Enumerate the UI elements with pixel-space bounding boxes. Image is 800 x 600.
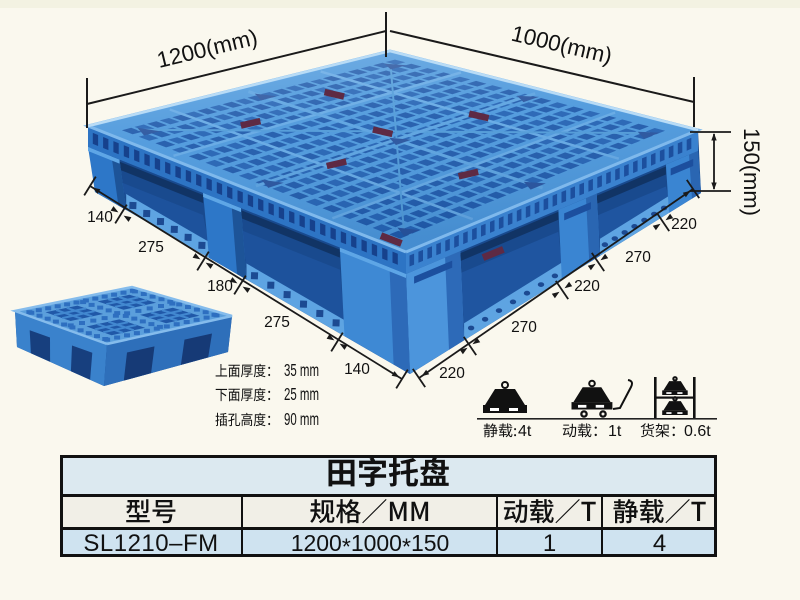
- svg-text:4t: 4t: [518, 423, 532, 440]
- svg-text:1200*1000*150: 1200*1000*150: [291, 530, 450, 560]
- svg-text:1t: 1t: [608, 423, 622, 440]
- svg-text:270: 270: [511, 319, 537, 336]
- svg-text:SL1210–FM: SL1210–FM: [83, 530, 218, 557]
- svg-text:140: 140: [87, 209, 113, 226]
- svg-text:4: 4: [653, 530, 666, 557]
- svg-text:180: 180: [207, 278, 233, 295]
- svg-text:0.6t: 0.6t: [684, 423, 711, 440]
- svg-text:220: 220: [671, 216, 697, 233]
- svg-text:140: 140: [344, 361, 370, 378]
- svg-text:25 mm: 25 mm: [284, 384, 319, 404]
- svg-text:220: 220: [439, 365, 465, 382]
- svg-text:220: 220: [574, 278, 600, 295]
- svg-text:275: 275: [264, 314, 290, 331]
- svg-text:1: 1: [543, 530, 556, 557]
- svg-text:90 mm: 90 mm: [284, 409, 319, 429]
- svg-text:150(mm): 150(mm): [739, 128, 764, 216]
- svg-text:270: 270: [625, 249, 651, 266]
- svg-text:275: 275: [138, 239, 164, 256]
- svg-text:35 mm: 35 mm: [284, 360, 319, 380]
